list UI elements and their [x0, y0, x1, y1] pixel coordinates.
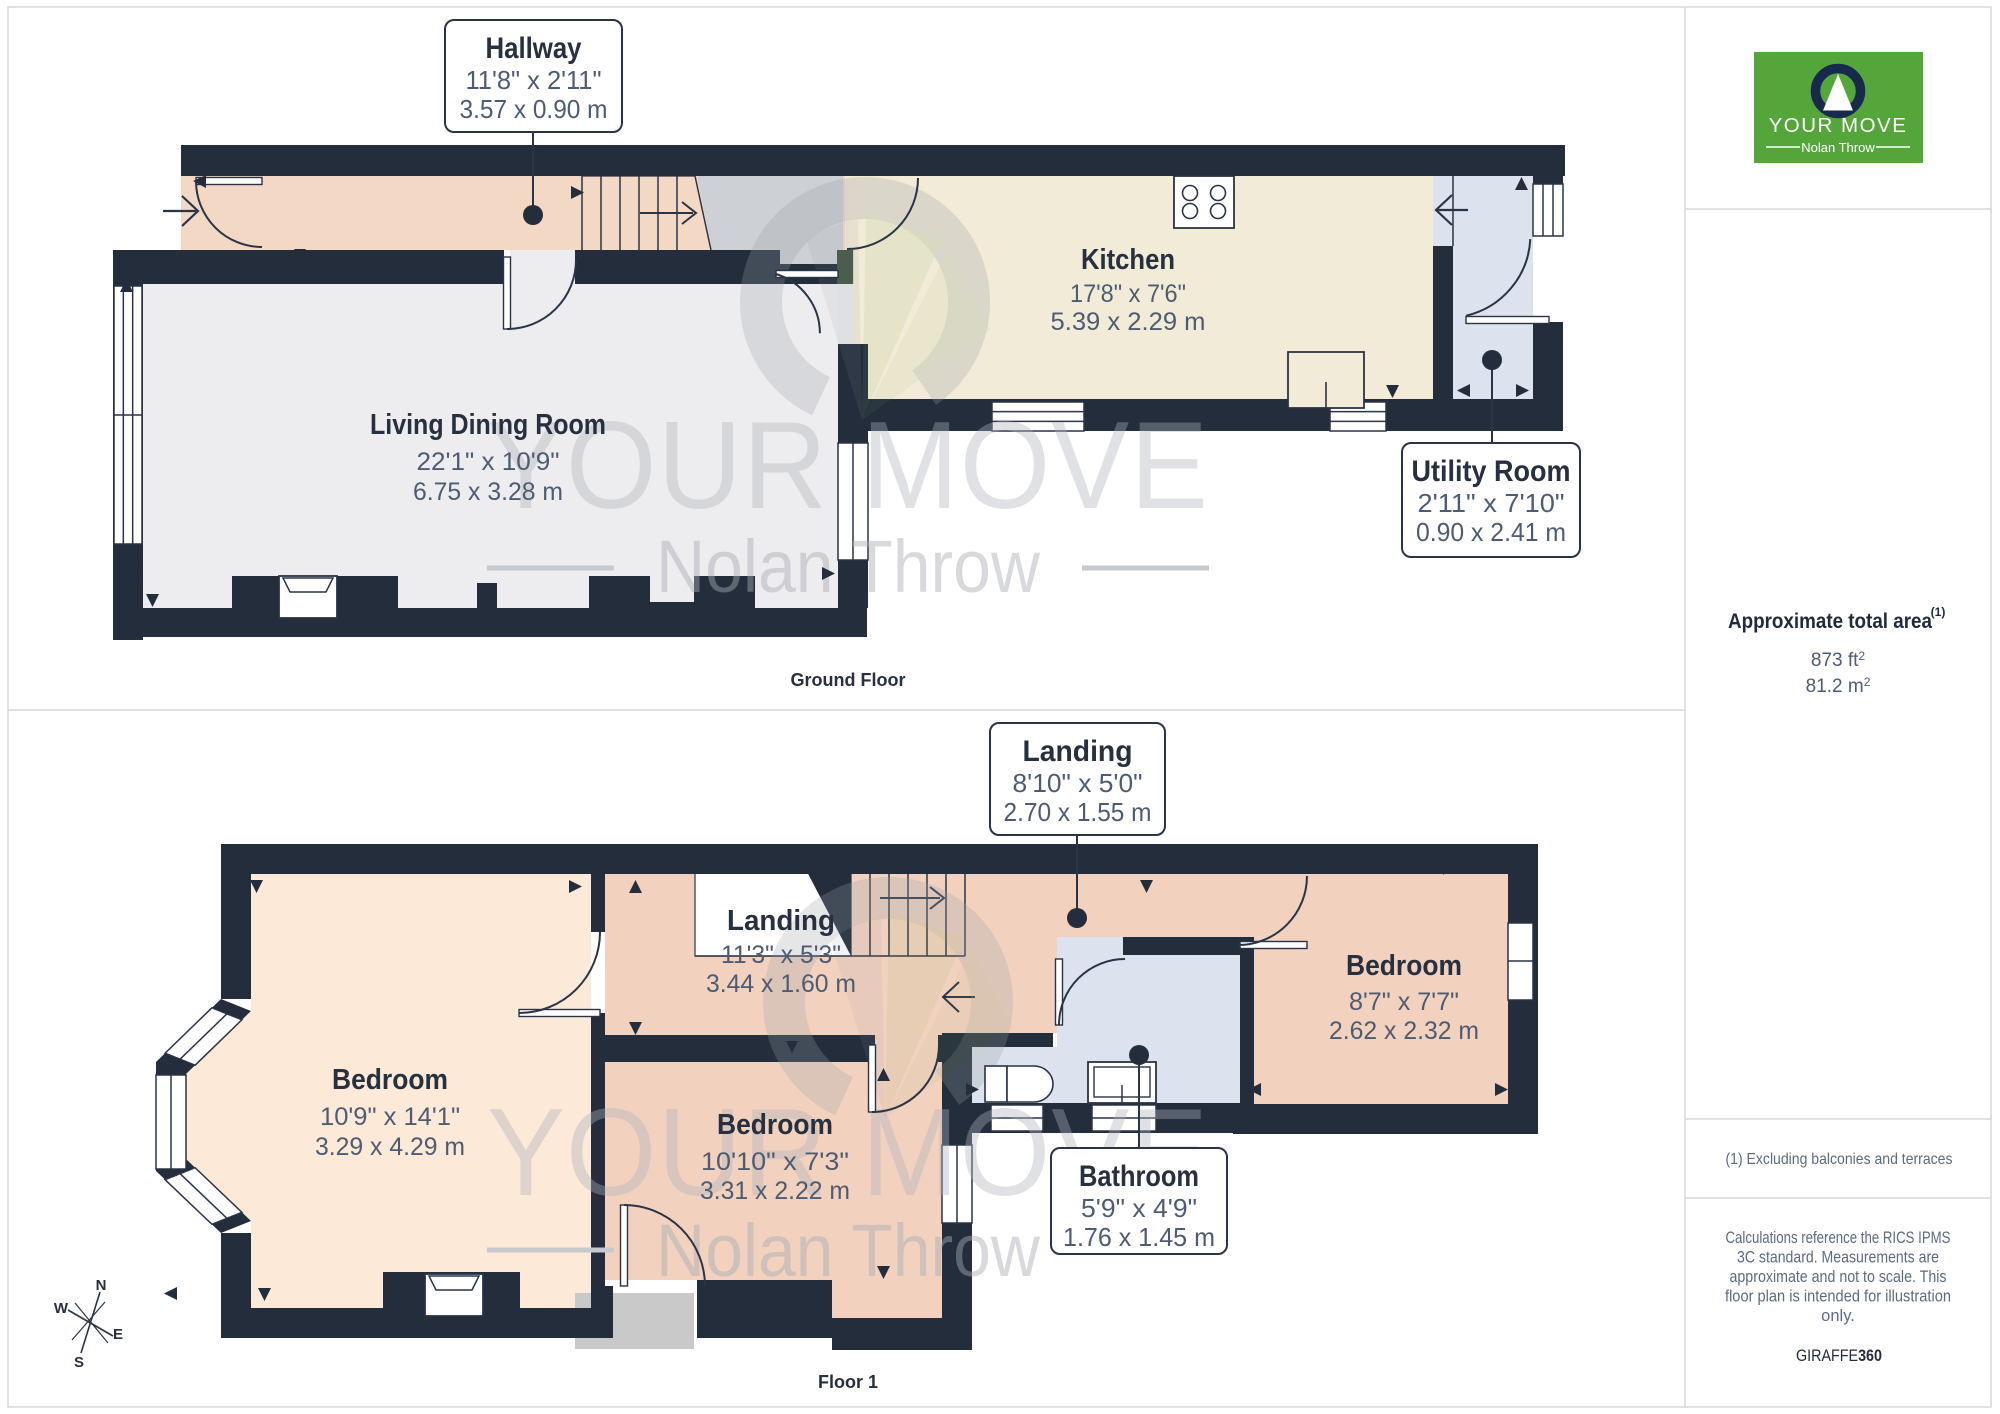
svg-text:S: S — [74, 1354, 84, 1371]
svg-text:Bedroom: Bedroom — [1346, 950, 1462, 982]
svg-text:GIRAFFE360: GIRAFFE360 — [1796, 1346, 1882, 1365]
svg-text:Bathroom: Bathroom — [1079, 1160, 1199, 1193]
svg-text:(1): (1) — [1931, 605, 1946, 619]
svg-text:Bedroom: Bedroom — [332, 1064, 448, 1096]
svg-text:3.57 x 0.90 m: 3.57 x 0.90 m — [460, 94, 608, 124]
svg-text:N: N — [96, 1277, 107, 1294]
svg-text:17'8" x 7'6": 17'8" x 7'6" — [1070, 280, 1186, 308]
svg-text:E: E — [113, 1326, 123, 1343]
svg-text:1.76 x 1.45 m: 1.76 x 1.45 m — [1063, 1222, 1215, 1252]
svg-text:floor plan is intended for ill: floor plan is intended for illustration — [1725, 1288, 1951, 1306]
svg-text:10'10" x 7'3": 10'10" x 7'3" — [701, 1148, 849, 1176]
svg-text:only.: only. — [1821, 1307, 1855, 1325]
svg-text:0.90 x 2.41 m: 0.90 x 2.41 m — [1416, 517, 1566, 547]
svg-text:Utility Room: Utility Room — [1412, 455, 1571, 488]
svg-text:W: W — [54, 1300, 69, 1317]
svg-text:5.39 x 2.29 m: 5.39 x 2.29 m — [1051, 308, 1206, 336]
svg-text:3C standard. Measurements are: 3C standard. Measurements are — [1737, 1249, 1939, 1267]
svg-text:Landing: Landing — [727, 905, 835, 937]
svg-text:2'11" x 7'10": 2'11" x 7'10" — [1418, 488, 1565, 518]
svg-text:Nolan Throw: Nolan Throw — [656, 1209, 1041, 1292]
svg-text:Kitchen: Kitchen — [1081, 244, 1175, 276]
svg-text:8'7" x 7'7": 8'7" x 7'7" — [1349, 988, 1459, 1016]
svg-text:Living Dining Room: Living Dining Room — [370, 409, 606, 441]
svg-text:approximate and not to scale.: approximate and not to scale. This — [1730, 1268, 1947, 1286]
svg-text:22'1" x 10'9": 22'1" x 10'9" — [417, 448, 560, 476]
svg-text:Floor 1: Floor 1 — [818, 1372, 878, 1392]
svg-text:Approximate total area: Approximate total area — [1728, 610, 1932, 633]
svg-text:Bedroom: Bedroom — [717, 1109, 833, 1141]
svg-text:11'3" x 5'3": 11'3" x 5'3" — [721, 941, 841, 969]
svg-text:873 ft2: 873 ft2 — [1811, 649, 1866, 671]
svg-text:Ground Floor: Ground Floor — [791, 670, 906, 690]
svg-text:YOUR MOVE: YOUR MOVE — [1769, 114, 1908, 137]
svg-text:2.70 x 1.55 m: 2.70 x 1.55 m — [1004, 797, 1152, 827]
svg-text:Calculations reference the RIC: Calculations reference the RICS IPMS — [1726, 1229, 1951, 1247]
svg-text:3.31 x 2.22 m: 3.31 x 2.22 m — [700, 1177, 850, 1205]
svg-text:2.62 x 2.32 m: 2.62 x 2.32 m — [1329, 1017, 1479, 1045]
svg-text:3.44 x 1.60 m: 3.44 x 1.60 m — [706, 970, 856, 998]
svg-text:8'10" x 5'0": 8'10" x 5'0" — [1013, 768, 1143, 798]
svg-text:81.2 m2: 81.2 m2 — [1806, 675, 1871, 697]
svg-text:5'9" x 4'9": 5'9" x 4'9" — [1081, 1193, 1197, 1223]
svg-text:Nolan Throw: Nolan Throw — [1801, 140, 1875, 155]
svg-text:3.29 x 4.29 m: 3.29 x 4.29 m — [315, 1133, 465, 1161]
svg-text:6.75 x 3.28 m: 6.75 x 3.28 m — [413, 478, 563, 506]
svg-text:Hallway: Hallway — [486, 32, 582, 65]
svg-text:(1) Excluding balconies and te: (1) Excluding balconies and terraces — [1726, 1151, 1953, 1168]
svg-text:Nolan Throw: Nolan Throw — [656, 525, 1041, 608]
svg-text:10'9" x 14'1": 10'9" x 14'1" — [320, 1103, 460, 1131]
svg-text:11'8" x 2'11": 11'8" x 2'11" — [466, 65, 602, 95]
svg-text:Landing: Landing — [1023, 735, 1133, 768]
